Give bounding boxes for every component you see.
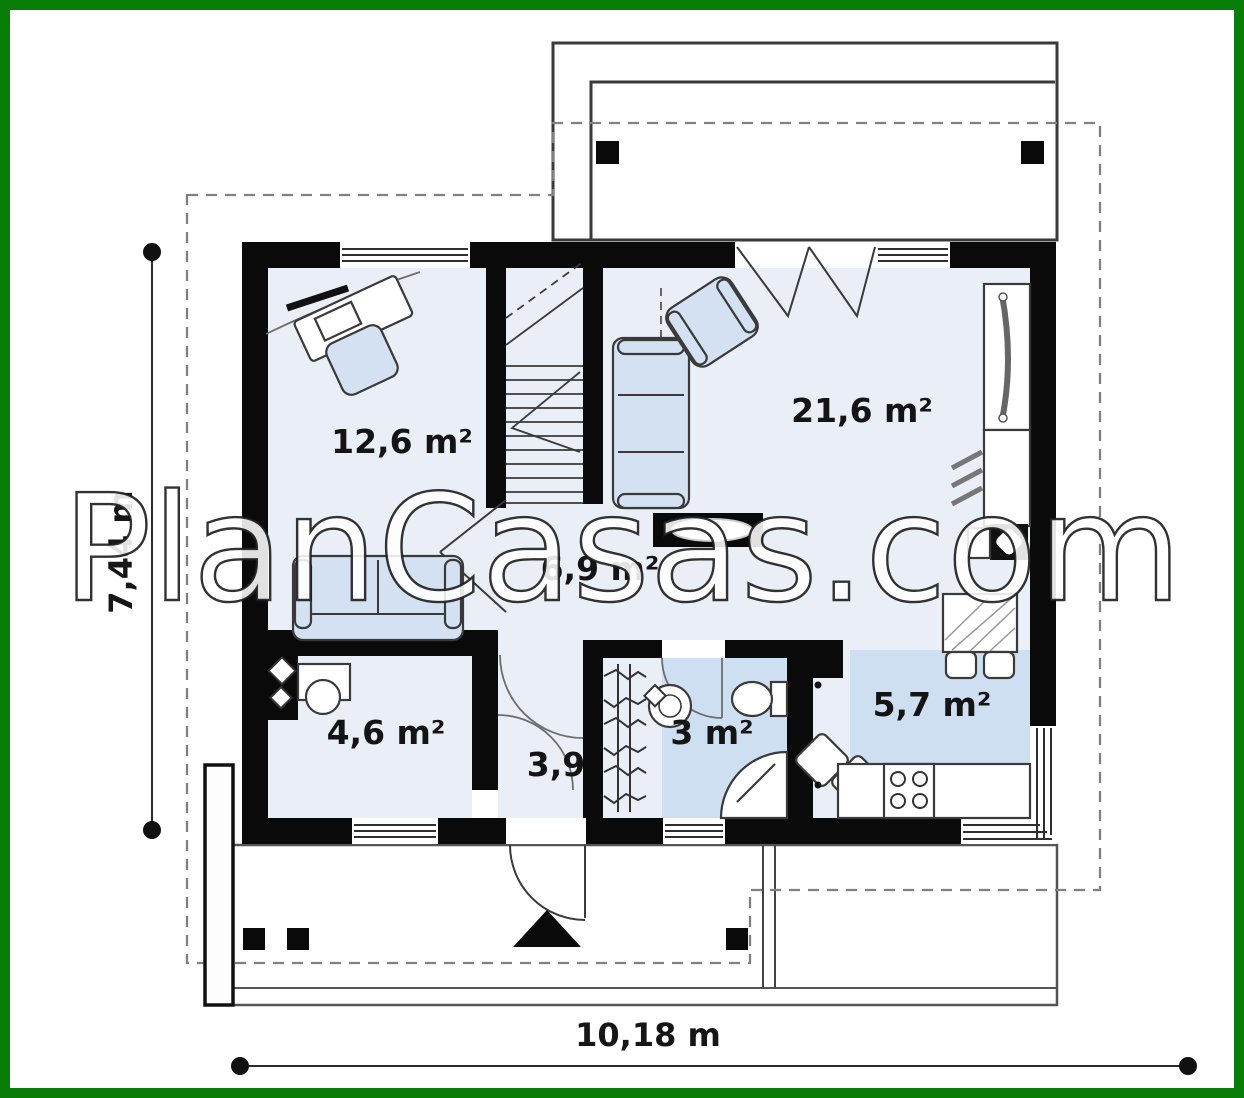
stove <box>884 764 934 818</box>
closet-wall-top <box>583 640 662 658</box>
room-area-label-kitchen: 5,7 m² <box>873 685 992 724</box>
terrace-door-opening <box>735 242 876 268</box>
porch-planter-wall <box>205 765 233 1005</box>
room-area-label-entry-hall: 3,9 <box>527 745 585 784</box>
floor-plan-svg: 7,44 m 10,18 m 12,6 m² 21,6 m² 6,9 m² 4,… <box>0 0 1244 1098</box>
bathroom-door-opening <box>662 640 725 658</box>
floor-plan-canvas: 7,44 m 10,18 m 12,6 m² 21,6 m² 6,9 m² 4,… <box>0 0 1244 1098</box>
window-living <box>876 242 950 268</box>
bathroom-wall-top <box>725 640 813 658</box>
window-bathroom <box>663 818 725 844</box>
terrace-post <box>596 141 619 164</box>
entrance-porch <box>233 845 1057 1005</box>
upper-terrace <box>553 43 1057 240</box>
watermark-text: PlanCasas.com <box>62 463 1182 635</box>
room-area-label-bathroom: 3 m² <box>670 713 753 752</box>
window-utility <box>352 818 438 844</box>
dimension-horizontal: 10,18 m <box>231 1016 1197 1075</box>
wall-utility-hall <box>472 656 498 790</box>
window-bedroom <box>340 242 470 268</box>
boiler-tank <box>306 680 340 714</box>
closet-wall-left <box>583 640 603 818</box>
room-area-label-bedroom: 12,6 m² <box>331 422 473 461</box>
entrance-door-opening <box>506 818 586 844</box>
room-area-label-utility: 4,6 m² <box>327 713 446 752</box>
chair <box>946 652 976 678</box>
utility-door-opening <box>472 790 498 818</box>
room-area-label-living-room: 21,6 m² <box>791 391 933 430</box>
wall-bathroom-kitchen <box>787 656 813 818</box>
toilet <box>732 682 787 716</box>
dimension-width-label: 10,18 m <box>575 1016 721 1054</box>
terrace-post <box>1021 141 1044 164</box>
chair <box>984 652 1014 678</box>
